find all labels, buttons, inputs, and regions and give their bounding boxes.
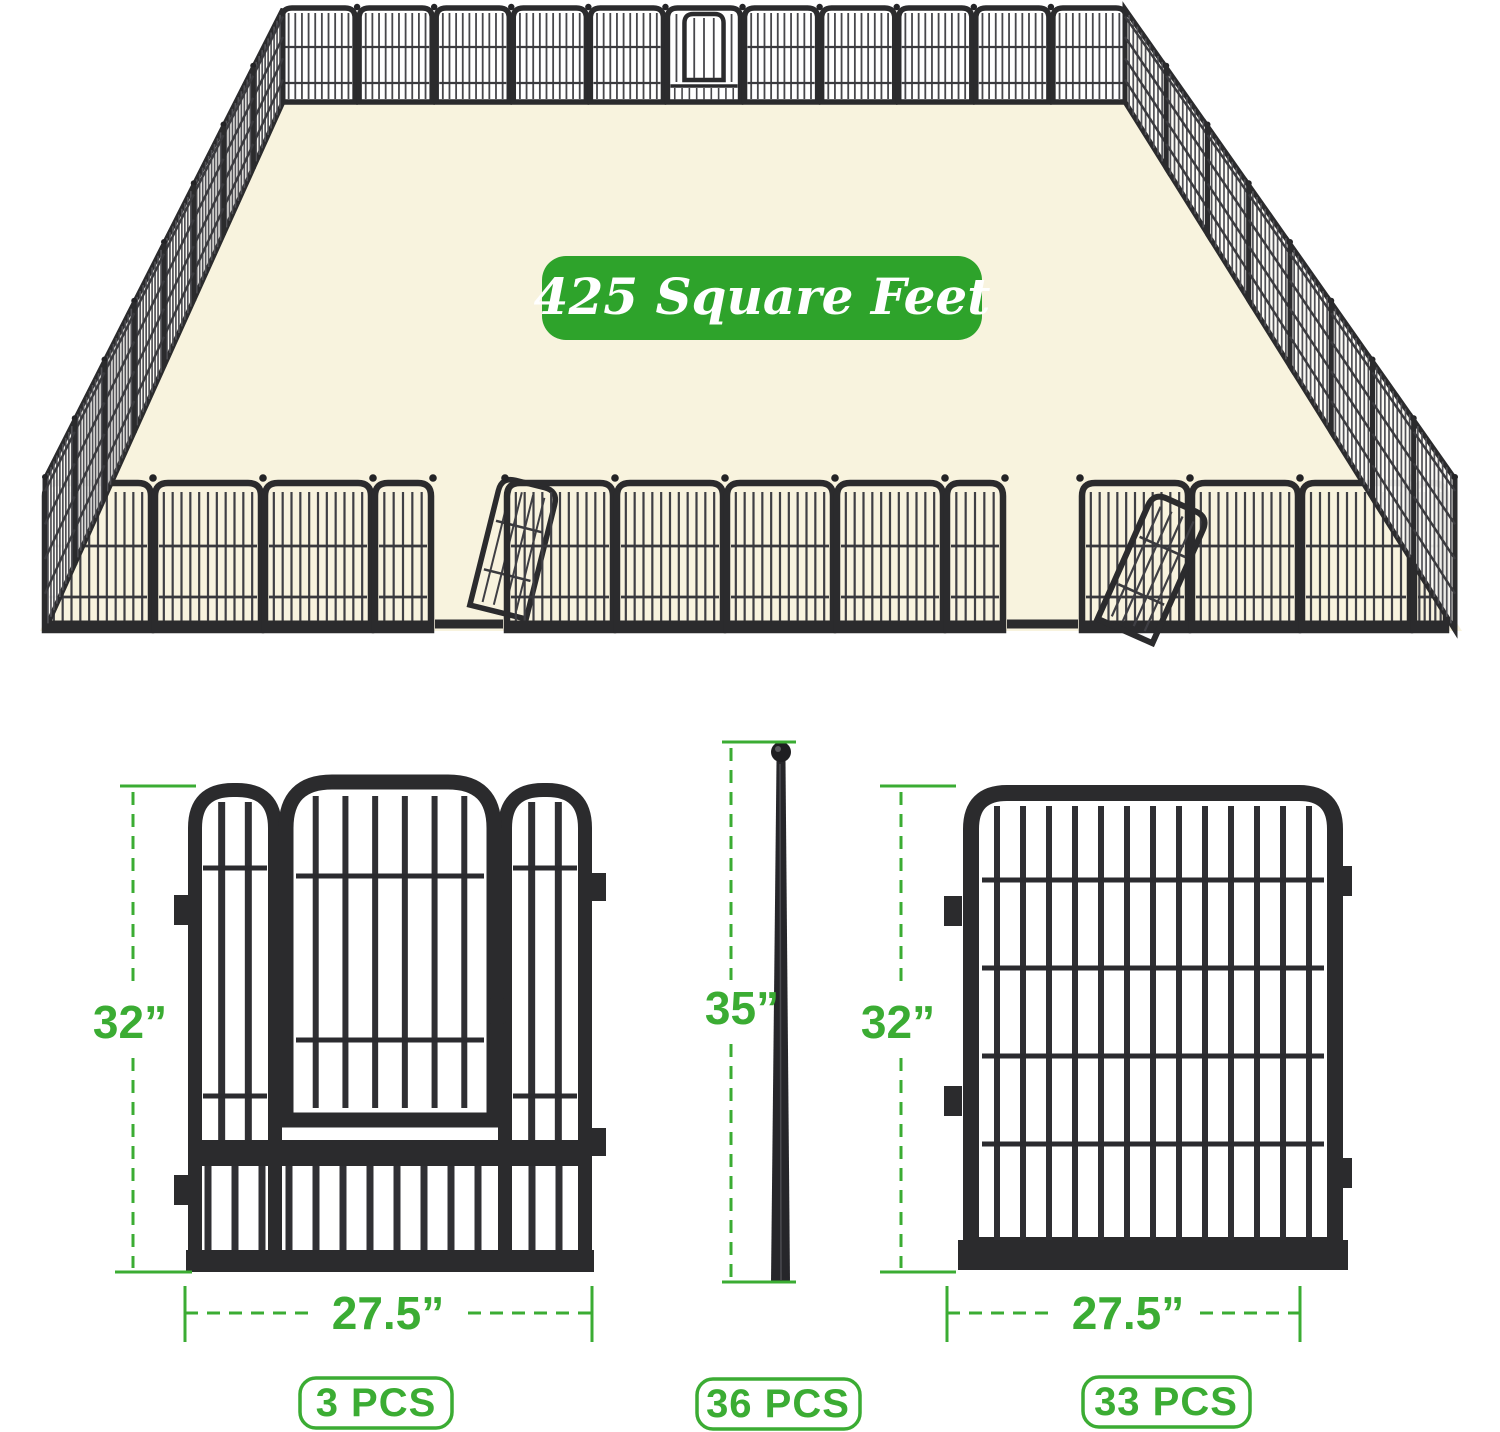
badge-regular-panels: 33 PCS [1083, 1377, 1250, 1427]
door-panel-figure [174, 782, 606, 1272]
area-banner: 425 Square Feet [534, 256, 991, 340]
door-panel-width-label: 27.5” [332, 1287, 445, 1339]
regular-panel-width-label: 27.5” [1072, 1287, 1185, 1339]
playpen-diagram-canvas: 425 Square Feet 32” 27.5” 35” 32” 27. [0, 0, 1500, 1432]
regular-panel-figure [944, 793, 1352, 1270]
ground-stake-height-label: 35” [705, 982, 779, 1034]
product-diagram: 425 Square Feet 32” 27.5” 35” 32” 27. [0, 0, 1500, 1432]
regular-panels-count: 33 PCS [1094, 1380, 1238, 1424]
regular-panel-height-label: 32” [861, 996, 935, 1048]
door-panels-count: 3 PCS [316, 1381, 437, 1425]
stakes-count: 36 PCS [706, 1382, 850, 1426]
badge-door-panels: 3 PCS [300, 1378, 452, 1428]
door-panel-height-label: 32” [93, 996, 167, 1048]
area-banner-label: 425 Square Feet [534, 267, 991, 326]
badge-stakes: 36 PCS [697, 1379, 860, 1429]
